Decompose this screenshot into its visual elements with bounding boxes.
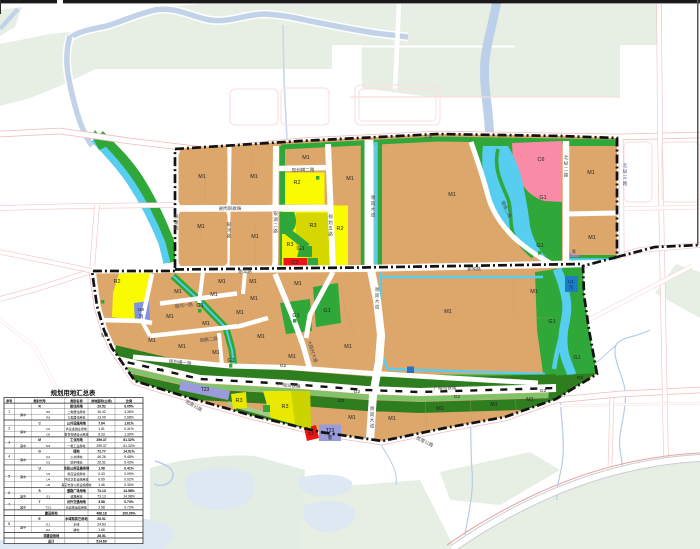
svg-text:居住用地: 居住用地	[70, 404, 84, 409]
svg-text:1.30%: 1.30%	[124, 433, 134, 437]
svg-text:6: 6	[8, 491, 10, 495]
svg-text:73.13: 73.13	[97, 489, 106, 493]
svg-text:G2: G2	[280, 363, 287, 369]
svg-text:M1: M1	[346, 176, 354, 182]
svg-text:G1: G1	[536, 243, 543, 249]
svg-text:长途客运站用地: 长途客运站用地	[66, 505, 87, 510]
svg-text:M1: M1	[288, 354, 296, 360]
svg-text:14.91%: 14.91%	[123, 449, 135, 453]
svg-text:T23: T23	[326, 428, 335, 434]
svg-text:T: T	[39, 500, 41, 504]
svg-text:谢岗大道: 谢岗大道	[371, 194, 376, 218]
svg-text:公共绿地: 公共绿地	[70, 454, 82, 459]
svg-text:其中: 其中	[20, 457, 26, 462]
svg-text:其中: 其中	[20, 443, 26, 448]
svg-text:C2: C2	[46, 427, 50, 431]
svg-text:E: E	[39, 517, 41, 521]
svg-text:教育科研设计用地: 教育科研设计用地	[64, 432, 88, 437]
svg-text:M1: M1	[530, 289, 538, 295]
svg-text:R3: R3	[310, 223, 317, 229]
svg-text:46.26: 46.26	[97, 455, 106, 459]
svg-text:5.43%: 5.43%	[124, 461, 134, 465]
svg-text:序号: 序号	[6, 398, 12, 403]
svg-text:M1: M1	[210, 292, 218, 298]
svg-text:M1: M1	[388, 416, 396, 422]
svg-text:客: 客	[328, 434, 333, 441]
svg-text:M1: M1	[166, 314, 174, 320]
svg-text:514.69: 514.69	[96, 539, 106, 543]
svg-text:M1: M1	[302, 155, 310, 161]
svg-text:R3: R3	[287, 242, 294, 248]
svg-text:C2: C2	[292, 260, 299, 266]
svg-text:G1: G1	[292, 313, 299, 319]
svg-text:防护绿地: 防护绿地	[70, 460, 82, 465]
svg-text:环境卫生设施用地: 环境卫生设施用地	[64, 477, 88, 482]
svg-text:U4: U4	[46, 478, 50, 482]
svg-text:G2: G2	[46, 461, 50, 465]
svg-text:道路用地: 道路用地	[70, 493, 82, 498]
svg-text:C6: C6	[46, 433, 50, 437]
svg-text:U9: U9	[138, 307, 144, 313]
svg-text:比例: 比例	[126, 398, 132, 403]
svg-text:总计: 总计	[48, 538, 55, 543]
svg-text:1.61%: 1.61%	[124, 421, 134, 425]
svg-text:7.84: 7.84	[98, 421, 105, 425]
svg-text:0.31%: 0.31%	[124, 427, 134, 431]
svg-text:规划用地汇总表: 规划用地汇总表	[51, 388, 96, 397]
svg-text:M1: M1	[202, 321, 210, 327]
svg-text:E2: E2	[46, 528, 50, 532]
svg-text:1.51: 1.51	[98, 427, 105, 431]
svg-text:26.51: 26.51	[97, 461, 106, 465]
svg-text:R2: R2	[294, 180, 301, 186]
svg-text:M1: M1	[250, 174, 258, 180]
svg-text:M1: M1	[236, 310, 244, 316]
svg-text:M1: M1	[198, 174, 206, 180]
svg-text:S1: S1	[46, 494, 50, 498]
svg-text:M: M	[38, 438, 41, 442]
svg-text:0.43: 0.43	[98, 472, 105, 476]
svg-text:非建设用地: 非建设用地	[43, 533, 60, 538]
svg-text:0.73%: 0.73%	[124, 506, 134, 510]
svg-text:银湖二路: 银湖二路	[273, 210, 278, 234]
svg-text:R2: R2	[46, 410, 50, 414]
svg-text:商业金融业用地: 商业金融业用地	[66, 426, 87, 431]
svg-text:消: 消	[139, 313, 144, 320]
svg-text:M1: M1	[212, 350, 220, 356]
svg-text:其中: 其中	[20, 474, 26, 479]
svg-text:其中: 其中	[20, 505, 26, 510]
svg-text:G1: G1	[297, 246, 304, 252]
svg-text:24.83: 24.83	[97, 523, 106, 527]
svg-text:U9: U9	[46, 483, 50, 487]
svg-text:G2: G2	[540, 388, 547, 394]
svg-text:1: 1	[8, 410, 10, 414]
svg-text:M1: M1	[46, 444, 51, 448]
svg-text:银鸿路: 银鸿路	[226, 221, 231, 240]
svg-text:R3: R3	[46, 416, 50, 420]
svg-text:M1: M1	[148, 338, 156, 344]
svg-text:0.41%: 0.41%	[124, 466, 134, 470]
svg-text:R3: R3	[236, 398, 243, 404]
svg-text:G2: G2	[338, 398, 345, 404]
svg-text:E1: E1	[46, 523, 50, 527]
svg-text:C6: C6	[538, 157, 545, 163]
svg-text:M1: M1	[587, 170, 595, 176]
svg-text:类别名称: 类别名称	[70, 398, 83, 403]
svg-text:G1: G1	[323, 308, 330, 314]
svg-text:M1: M1	[294, 281, 302, 287]
svg-text:M1: M1	[174, 289, 182, 295]
svg-text:公共设施用地: 公共设施用地	[67, 420, 87, 425]
svg-text:其中: 其中	[20, 429, 26, 434]
svg-text:S: S	[39, 489, 41, 493]
svg-text:三类居住用地: 三类居住用地	[67, 415, 85, 420]
svg-text:R2: R2	[337, 226, 344, 232]
svg-text:73.13: 73.13	[97, 494, 106, 498]
svg-text:二类居住用地: 二类居住用地	[67, 409, 85, 414]
svg-text:3: 3	[8, 441, 10, 445]
svg-text:3.36%: 3.36%	[124, 410, 134, 414]
svg-text:4: 4	[8, 455, 10, 459]
svg-text:R3: R3	[282, 404, 289, 410]
svg-text:北纵二路: 北纵二路	[564, 154, 569, 178]
svg-text:13.09: 13.09	[97, 416, 106, 420]
svg-text:3.58: 3.58	[98, 500, 105, 504]
svg-text:耕地: 耕地	[73, 527, 79, 532]
svg-text:1.68: 1.68	[98, 528, 105, 532]
svg-text:水域: 水域	[73, 522, 79, 527]
svg-text:建设用地: 建设用地	[44, 510, 59, 515]
svg-text:M1: M1	[251, 234, 259, 240]
svg-text:61.32%: 61.32%	[123, 438, 135, 442]
svg-text:0.02%: 0.02%	[124, 478, 134, 482]
svg-text:M1: M1	[588, 235, 596, 241]
svg-text:G1: G1	[227, 358, 234, 364]
svg-text:5: 5	[8, 474, 10, 478]
svg-text:G2: G2	[157, 367, 164, 373]
svg-text:26.51: 26.51	[97, 534, 106, 538]
svg-text:G1: G1	[573, 355, 580, 361]
svg-text:其中: 其中	[20, 412, 26, 417]
svg-text:100.00%: 100.00%	[122, 511, 135, 515]
svg-text:2.68%: 2.68%	[124, 416, 134, 420]
svg-text:U1: U1	[46, 472, 50, 476]
svg-text:9.48%: 9.48%	[124, 455, 134, 459]
svg-text:工业用地: 工业用地	[70, 437, 84, 442]
svg-text:299.37: 299.37	[96, 438, 106, 442]
svg-text:0.73%: 0.73%	[124, 500, 134, 504]
svg-text:类别代号: 类别代号	[33, 398, 45, 403]
svg-text:8: 8	[8, 522, 10, 526]
svg-text:6.05%: 6.05%	[124, 405, 134, 409]
svg-text:U1: U1	[568, 279, 574, 284]
svg-text:0.09%: 0.09%	[124, 472, 134, 476]
svg-text:G1: G1	[46, 455, 50, 459]
svg-text:谢岗大道: 谢岗大道	[375, 286, 380, 310]
svg-text:14.98%: 14.98%	[123, 489, 135, 493]
svg-text:M1: M1	[197, 224, 205, 230]
svg-text:M1: M1	[249, 279, 257, 285]
svg-text:C2: C2	[308, 431, 314, 436]
svg-text:G2: G2	[577, 375, 584, 381]
svg-text:其中: 其中	[20, 524, 26, 529]
svg-text:水域和其它用地: 水域和其它用地	[64, 516, 88, 521]
svg-text:T23: T23	[46, 506, 52, 510]
svg-text:26.51: 26.51	[97, 517, 106, 521]
svg-text:污: 污	[569, 284, 574, 291]
svg-text:M1: M1	[436, 406, 444, 412]
svg-text:M1: M1	[218, 279, 226, 285]
svg-text:M1: M1	[101, 333, 109, 339]
svg-text:用地面积(公顷): 用地面积(公顷)	[91, 398, 112, 403]
svg-text:M1: M1	[448, 192, 456, 198]
svg-text:北纵三路: 北纵三路	[623, 162, 628, 187]
svg-text:M1: M1	[348, 415, 356, 421]
svg-text:G2: G2	[354, 389, 361, 395]
svg-text:G2: G2	[454, 394, 461, 400]
svg-text:1.98: 1.98	[98, 466, 105, 470]
svg-text:其中: 其中	[20, 493, 26, 498]
svg-text:绿地: 绿地	[73, 448, 80, 453]
svg-text:T23: T23	[201, 387, 210, 393]
svg-text:谢岗大道: 谢岗大道	[370, 405, 375, 429]
svg-text:其它市政公用设施用地: 其它市政公用设施用地	[61, 482, 91, 487]
svg-text:488.18: 488.18	[96, 511, 106, 515]
svg-text:规划五路: 规划五路	[328, 213, 333, 237]
svg-text:1.46: 1.46	[98, 483, 105, 487]
svg-text:G1: G1	[196, 303, 203, 309]
svg-text:299.37: 299.37	[96, 444, 106, 448]
svg-text:M1: M1	[490, 402, 498, 408]
svg-text:G1: G1	[548, 319, 555, 325]
svg-text:29.52: 29.52	[97, 405, 106, 409]
svg-text:泵: 泵	[572, 249, 576, 254]
svg-text:14.98%: 14.98%	[123, 494, 135, 498]
svg-text:0.30%: 0.30%	[124, 483, 134, 487]
svg-text:16.42: 16.42	[97, 410, 106, 414]
svg-text:3.58: 3.58	[98, 506, 105, 510]
svg-text:M1: M1	[178, 344, 186, 350]
svg-text:谢常路: 谢常路	[238, 268, 252, 275]
svg-text:对外交通用地: 对外交通用地	[67, 499, 87, 504]
svg-text:M1: M1	[344, 344, 352, 350]
svg-text:M1: M1	[257, 334, 265, 340]
svg-text:M1: M1	[526, 397, 534, 403]
svg-text:供应设施用地: 供应设施用地	[67, 471, 85, 476]
svg-text:一类工业用地: 一类工业用地	[67, 443, 85, 448]
svg-text:R2: R2	[114, 279, 121, 285]
svg-text:72.77: 72.77	[97, 449, 106, 453]
svg-text:61.32%: 61.32%	[123, 444, 135, 448]
svg-text:2: 2	[8, 427, 10, 431]
svg-text:道路广场用地: 道路广场用地	[67, 488, 87, 493]
svg-text:7: 7	[8, 502, 10, 506]
svg-text:6.33: 6.33	[98, 433, 105, 437]
svg-text:M1: M1	[444, 309, 452, 315]
svg-text:银湖路: 银湖路	[174, 213, 179, 232]
svg-text:0.09: 0.09	[98, 478, 105, 482]
svg-text:M1: M1	[250, 296, 258, 302]
svg-text:市政公用设施用地: 市政公用设施用地	[64, 465, 90, 470]
svg-text:G1: G1	[539, 195, 546, 201]
